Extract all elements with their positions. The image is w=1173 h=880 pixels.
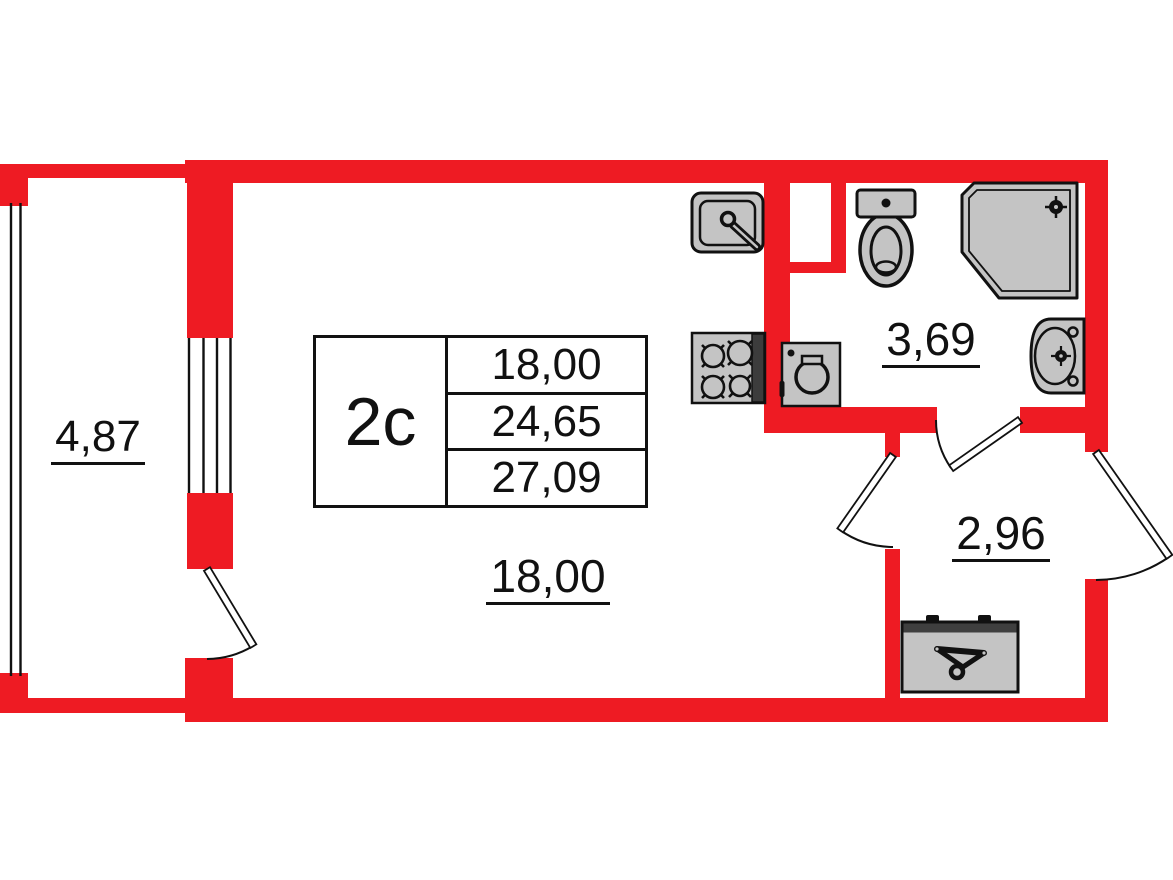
wall-bath-bottom-right — [1020, 407, 1108, 433]
hallway-area-value: 2,96 — [952, 509, 1050, 562]
wardrobe-icon — [902, 615, 1018, 692]
wall-balcony-pier-top — [0, 164, 28, 206]
wall-left-upper — [187, 160, 233, 338]
unit-area-rows: 18,00 24,65 27,09 — [448, 338, 645, 505]
room-label-living-room: 18,00 — [478, 552, 618, 605]
balcony-door — [204, 567, 256, 659]
stove-icon — [692, 333, 765, 403]
living-room-area-value: 18,00 — [486, 552, 609, 605]
wall-right-lower — [1085, 579, 1108, 722]
room-label-balcony: 4,87 — [28, 414, 168, 465]
wall-top-balcony — [0, 164, 190, 178]
kitchen-sink-icon — [692, 193, 763, 252]
unit-info-table: 2с 18,00 24,65 27,09 — [313, 335, 648, 508]
wall-shaft-right — [831, 183, 846, 273]
unit-area-row-living: 18,00 — [448, 338, 645, 395]
balcony-area-value: 4,87 — [51, 414, 145, 465]
unit-code: 2с — [316, 338, 448, 505]
entrance-door — [1093, 450, 1172, 580]
bathroom-door — [936, 417, 1022, 471]
unit-area-row-total: 24,65 — [448, 395, 645, 452]
wall-bottom-balcony — [0, 698, 190, 713]
bathroom-area-value: 3,69 — [882, 315, 980, 368]
wall-bath-bottom-left — [764, 407, 937, 433]
washing-machine-icon — [780, 343, 841, 406]
wall-top-main — [185, 160, 1108, 183]
wall-bottom-main — [185, 698, 1108, 722]
shower-icon — [962, 183, 1077, 298]
wall-left-mid — [187, 493, 233, 569]
wall-hall-stub — [885, 433, 900, 457]
unit-area-row-total-with-balcony: 27,09 — [448, 451, 645, 505]
room-label-bathroom: 3,69 — [861, 315, 1001, 368]
room-label-hallway: 2,96 — [931, 509, 1071, 562]
washbasin-icon — [1031, 319, 1084, 393]
living-room-door — [837, 453, 896, 547]
wall-hall-left — [885, 549, 900, 722]
toilet-icon — [857, 190, 915, 286]
floor-plan: 4,87 18,00 3,69 2,96 2с 18,00 24,65 27,0… — [0, 0, 1173, 880]
wall-shaft-bottom — [789, 262, 846, 273]
balcony-window — [11, 203, 21, 676]
living-room-window — [189, 338, 231, 493]
